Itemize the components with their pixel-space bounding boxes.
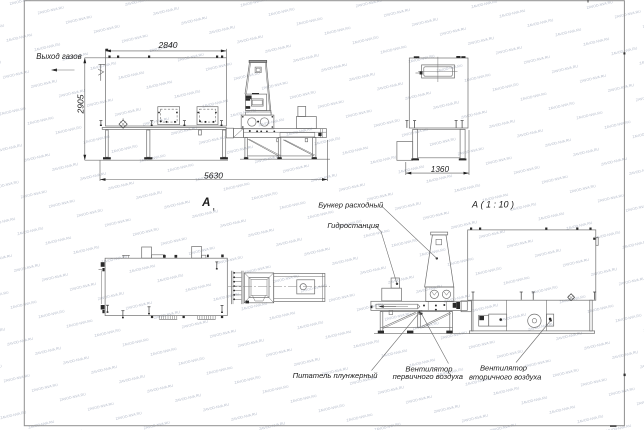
svg-text:А ( 1 : 10 ): А ( 1 : 10 ) — [471, 200, 514, 210]
svg-text:Питатель плунжерный: Питатель плунжерный — [293, 371, 379, 380]
svg-text:А: А — [201, 197, 210, 209]
svg-text:Гидростанция: Гидростанция — [327, 221, 379, 230]
svg-text:Вентилятор: Вентилятор — [480, 364, 527, 373]
svg-text:1360: 1360 — [431, 165, 450, 174]
svg-text:5630: 5630 — [204, 171, 223, 181]
svg-text:2840: 2840 — [158, 40, 178, 50]
svg-text:первичного воздуха: первичного воздуха — [393, 372, 463, 381]
svg-text:2905: 2905 — [75, 94, 85, 114]
svg-text:вторичного воздуха: вторичного воздуха — [469, 372, 541, 381]
svg-text:Бункер расходный: Бункер расходный — [318, 201, 384, 210]
svg-text:Выход газов: Выход газов — [36, 52, 81, 61]
